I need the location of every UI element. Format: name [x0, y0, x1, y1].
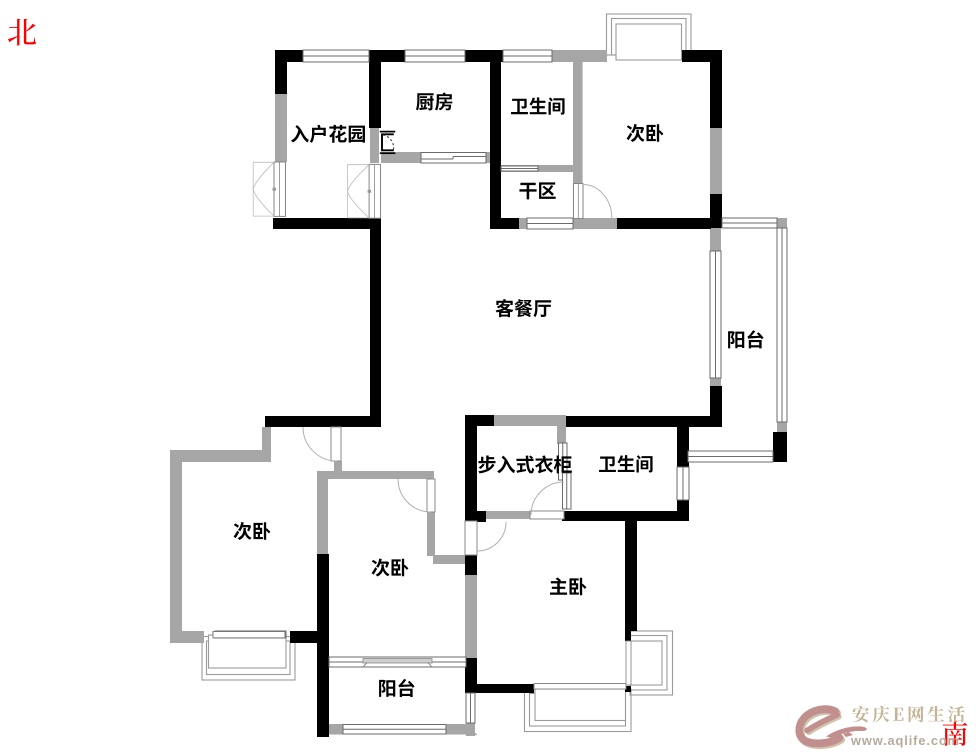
svg-text:www.aqlife.com: www.aqlife.com	[850, 733, 960, 748]
